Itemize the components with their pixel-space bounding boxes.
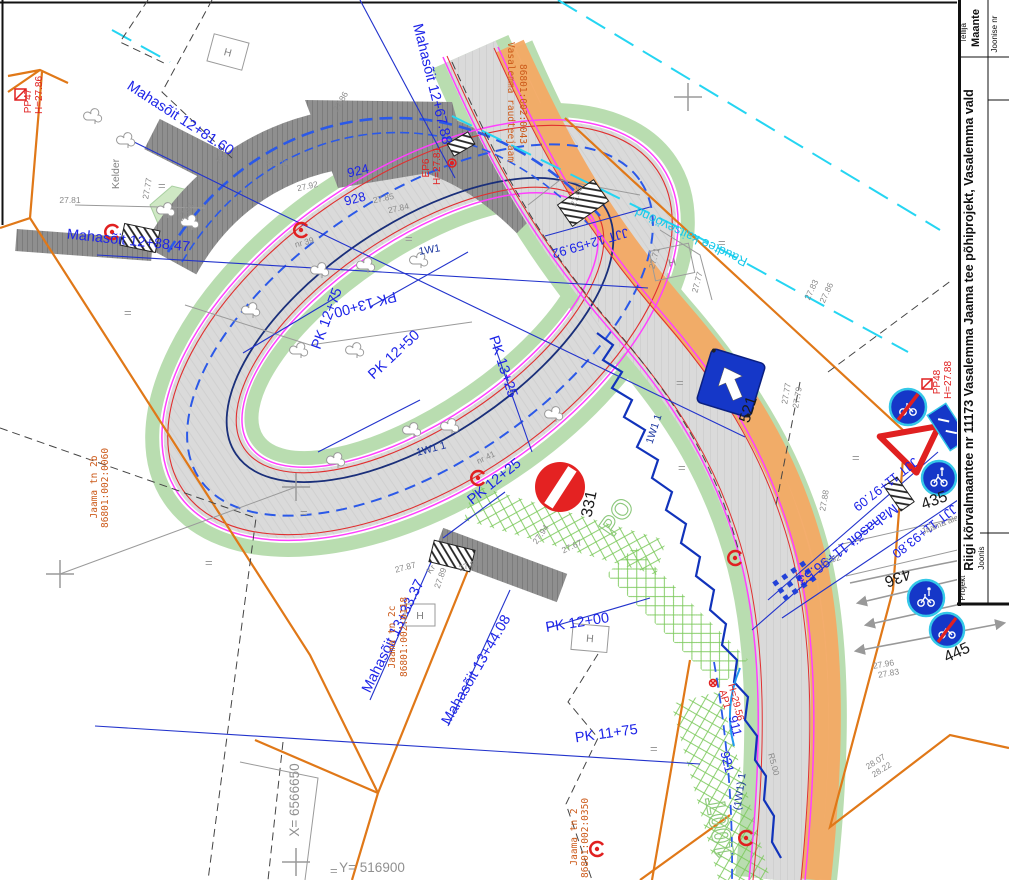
label-r300: R3.00 [266,158,289,168]
svg-text:27.77: 27.77 [140,177,154,200]
label-1w1-b: 1W1 [418,242,442,258]
label-kelder: Kelder [110,158,122,189]
svg-text:=: = [650,741,658,756]
svg-text:27.79: 27.79 [790,386,804,409]
sign-331-no-entry-icon [535,462,585,512]
svg-text:=: = [678,460,686,475]
svg-text:=: = [852,450,860,465]
label-jaama-2c: Jaama tn 2c [387,606,398,669]
svg-text:27.77: 27.77 [690,270,705,293]
label-raudteejaam: Vasalemma raudteejaam [505,42,516,162]
svg-text:=: = [158,178,166,193]
svg-text:27.81: 27.81 [59,195,81,205]
titleblock-client-value: Maante [970,9,982,47]
label-jaama-2b: Jaama tn 2b [89,455,100,518]
label-pk-11-75: PK 11+75 [574,722,639,747]
sign-cycle-path-c-icon [908,580,944,616]
svg-text:27.88: 27.88 [817,489,831,512]
label-mahasoit-13-44: Mahasõit 13+44.08 [439,612,515,727]
svg-text:=: = [676,375,684,390]
label-jaama-2-code: 86801:002:0350 [580,798,591,878]
svg-text:27.86: 27.86 [817,281,835,305]
label-pp47: PP47 [23,88,34,113]
label-pp48: PP48 [932,369,943,394]
titleblock-project-label: Projekt [958,575,967,601]
svg-text:=: = [205,555,213,570]
title-block: Tellija Maante Joonise nr Riigi kõrvalma… [957,0,1009,606]
label-jaama-2c-code: 86801:002:0118 [399,597,410,677]
label-1w1-c: 1W1 1 [644,413,665,446]
label-y-coordinate: Y= 516900 [339,860,405,875]
svg-text:=: = [405,231,413,246]
label-jaama-2: Jaama tn 2 [569,808,580,865]
label-jaama-2b-code: 86801:002:0060 [100,448,111,528]
svg-text:H: H [586,633,595,646]
svg-text:=: = [330,863,338,878]
svg-text:=: = [124,305,132,320]
plan-drawing: H H H H === === === === [0,0,1009,880]
svg-text:H: H [416,610,424,622]
label-pp48-h: H=27.88 [943,361,954,400]
svg-text:=: = [300,505,308,520]
label-pp47-h: H=27.86 [34,76,45,115]
label-x-coordinate: X= 6566650 [287,763,302,836]
svg-text:H: H [223,46,233,60]
label-ep6-h: H=27.81 [432,147,443,186]
label-ep6: EP6 [421,158,432,177]
svg-text:H: H [667,256,677,269]
label-raudteejaam-code: 86801:002:0043 [517,64,528,144]
pp48-marker [922,379,932,389]
sign-cycle-path-a-icon [890,389,926,425]
titleblock-client-label: Tellija [959,22,968,43]
road-plan-sheet: H H H H === === === === [0,0,1009,880]
label-sign-436: 436 [882,565,913,590]
svg-text:27.87: 27.87 [394,559,417,574]
label-pk-12-00: PK 12+00 [544,610,610,636]
titleblock-drawing-label: Joonis [977,546,986,569]
titleblock-drawing-no-label: Joonise nr [990,15,999,52]
titleblock-title: Riigi kõrvalmaantee nr 11173 Vasalemma J… [962,89,976,571]
